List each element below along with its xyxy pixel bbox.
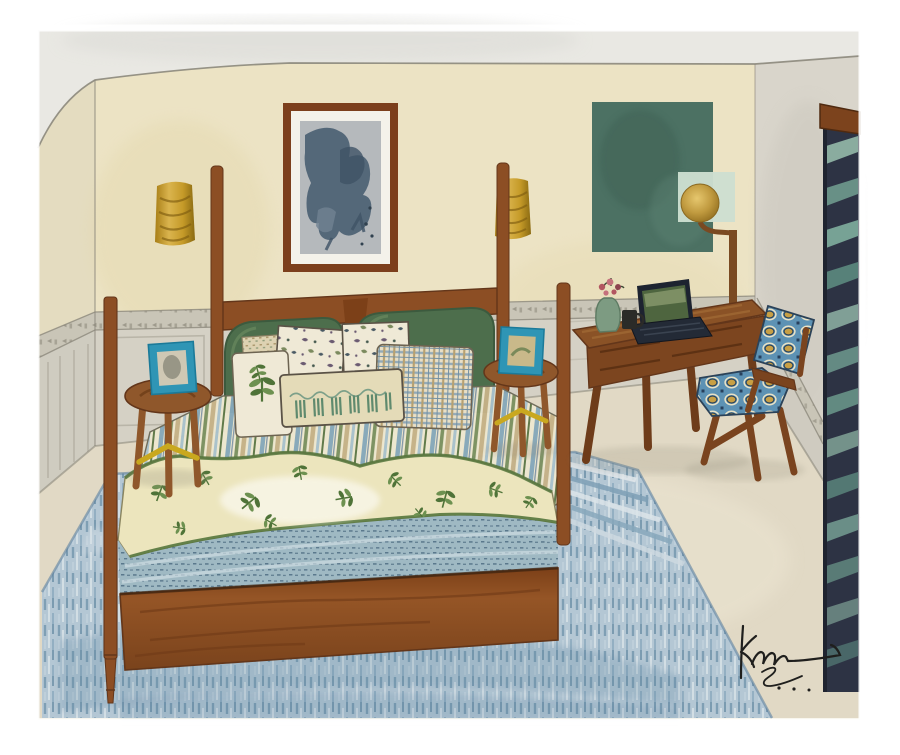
framed-photo-right	[499, 327, 544, 375]
lamp-globe	[681, 184, 719, 222]
bed-post-front-left	[104, 297, 117, 703]
watercolor-painting: Watercolor bedroom interior illustration…	[0, 0, 900, 755]
framed-photo-left	[148, 341, 196, 394]
framed-abstract-art	[283, 103, 398, 272]
shutter-stile	[823, 126, 827, 692]
bed-post-front-right	[557, 283, 570, 545]
vase	[596, 298, 620, 332]
louvered-shutters	[820, 104, 860, 692]
bed-post-back-left	[211, 166, 223, 396]
pillow-lumbar	[280, 369, 405, 427]
wall-sconce-left	[155, 182, 195, 246]
painting-canvas: Watercolor bedroom interior illustration…	[0, 0, 900, 755]
